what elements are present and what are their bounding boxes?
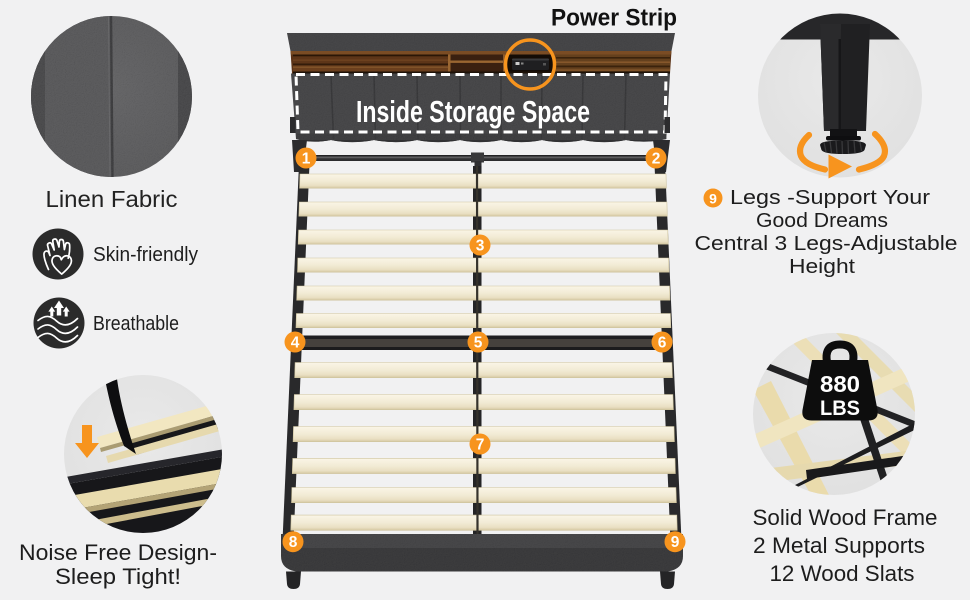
svg-text:8: 8 xyxy=(289,534,298,551)
svg-text:1: 1 xyxy=(302,151,311,168)
svg-text:Legs -Support Your: Legs -Support Your xyxy=(730,186,930,209)
svg-text:880: 880 xyxy=(820,371,860,397)
svg-text:4: 4 xyxy=(291,335,300,352)
svg-text:Central 3 Legs-Adjustable: Central 3 Legs-Adjustable xyxy=(695,232,958,255)
svg-text:Breathable: Breathable xyxy=(93,313,179,335)
svg-text:Skin-friendly: Skin-friendly xyxy=(93,244,198,266)
svg-text:7: 7 xyxy=(476,437,485,454)
svg-text:2 Metal Supports: 2 Metal Supports xyxy=(753,533,925,558)
svg-text:3: 3 xyxy=(476,238,485,255)
svg-text:Sleep Tight!: Sleep Tight! xyxy=(55,564,181,589)
svg-text:9: 9 xyxy=(671,534,680,551)
svg-text:Good Dreams: Good Dreams xyxy=(756,209,888,232)
svg-text:Power Strip: Power Strip xyxy=(551,5,677,32)
svg-text:2: 2 xyxy=(652,151,661,168)
svg-text:Noise Free Design-: Noise Free Design- xyxy=(19,540,217,565)
svg-text:5: 5 xyxy=(474,335,483,352)
svg-text:Linen Fabric: Linen Fabric xyxy=(46,186,178,212)
svg-text:6: 6 xyxy=(658,335,667,352)
svg-text:LBS: LBS xyxy=(820,397,860,420)
svg-text:Inside Storage Space: Inside Storage Space xyxy=(356,94,590,129)
svg-text:12 Wood Slats: 12 Wood Slats xyxy=(770,561,915,586)
svg-text:9: 9 xyxy=(709,190,717,206)
svg-text:Solid Wood Frame: Solid Wood Frame xyxy=(753,505,938,530)
svg-text:Height: Height xyxy=(789,255,855,278)
